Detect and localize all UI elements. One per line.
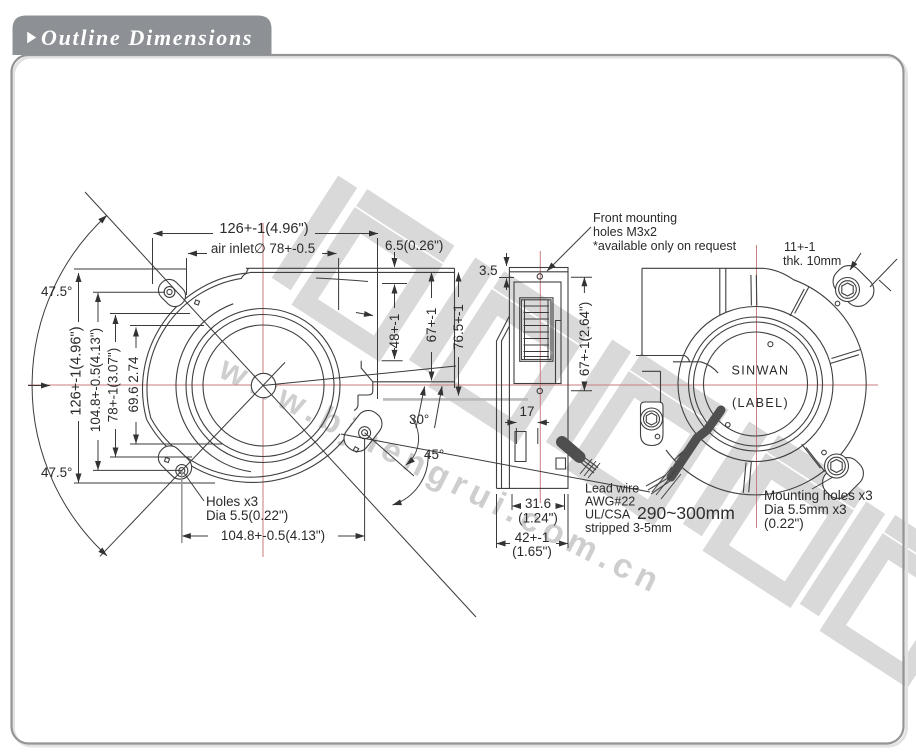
svg-text:(1.65"): (1.65"): [512, 544, 552, 559]
svg-text:104.8+-0.5(4.13"): 104.8+-0.5(4.13"): [88, 328, 103, 432]
svg-text:67+-1: 67+-1: [424, 308, 439, 343]
svg-text:78+-1(3.07"): 78+-1(3.07"): [106, 348, 121, 422]
svg-text:*available only on request: *available only on request: [593, 239, 737, 253]
svg-text:Mounting holes x3: Mounting holes x3: [764, 488, 873, 503]
svg-text:Dia 5.5mm x3: Dia 5.5mm x3: [764, 502, 847, 517]
svg-text:47.5°: 47.5°: [41, 284, 72, 299]
svg-text:UL/CSA: UL/CSA: [585, 508, 631, 522]
svg-text:(0.22"): (0.22"): [764, 516, 804, 531]
svg-text:104.8+-0.5(4.13"): 104.8+-0.5(4.13"): [221, 528, 325, 543]
svg-text:11+-1: 11+-1: [784, 240, 815, 254]
svg-text:6.5(0.26"): 6.5(0.26"): [385, 238, 443, 253]
svg-text:31.6: 31.6: [525, 496, 551, 511]
svg-text:SINWAN: SINWAN: [732, 364, 790, 378]
svg-text:76.5+-1: 76.5+-1: [451, 304, 466, 350]
svg-text:holes M3x2: holes M3x2: [593, 225, 657, 239]
svg-text:AWG#22: AWG#22: [585, 495, 635, 509]
svg-text:Outline Dimensions: Outline Dimensions: [41, 25, 253, 50]
svg-text:(LABEL): (LABEL): [732, 396, 789, 410]
svg-text:air inlet∅ 78+-0.5: air inlet∅ 78+-0.5: [211, 241, 315, 256]
svg-text:stripped 3-5mm: stripped 3-5mm: [585, 521, 672, 535]
svg-text:48+-1: 48+-1: [387, 314, 402, 349]
svg-text:17: 17: [520, 404, 535, 419]
svg-text:thk. 10mm: thk. 10mm: [783, 254, 841, 268]
svg-text:(1.24"): (1.24"): [518, 511, 558, 526]
svg-text:67+-1(2.64"): 67+-1(2.64"): [577, 302, 592, 376]
svg-text:126+-1(4.96"): 126+-1(4.96"): [219, 221, 308, 237]
svg-text:Front mounting: Front mounting: [593, 211, 677, 225]
svg-text:3.5: 3.5: [479, 263, 498, 278]
svg-text:47.5°: 47.5°: [41, 465, 72, 480]
svg-text:45°: 45°: [424, 447, 444, 462]
svg-text:126+-1(4.96"): 126+-1(4.96"): [69, 326, 85, 415]
svg-text:290~300mm: 290~300mm: [637, 503, 735, 523]
svg-text:Lead wire: Lead wire: [585, 482, 639, 496]
svg-text:69.6 2.74: 69.6 2.74: [126, 356, 141, 412]
svg-text:Holes x3: Holes x3: [206, 494, 258, 509]
svg-text:42+-1: 42+-1: [515, 530, 550, 545]
svg-text:Dia 5.5(0.22"): Dia 5.5(0.22"): [206, 508, 288, 523]
